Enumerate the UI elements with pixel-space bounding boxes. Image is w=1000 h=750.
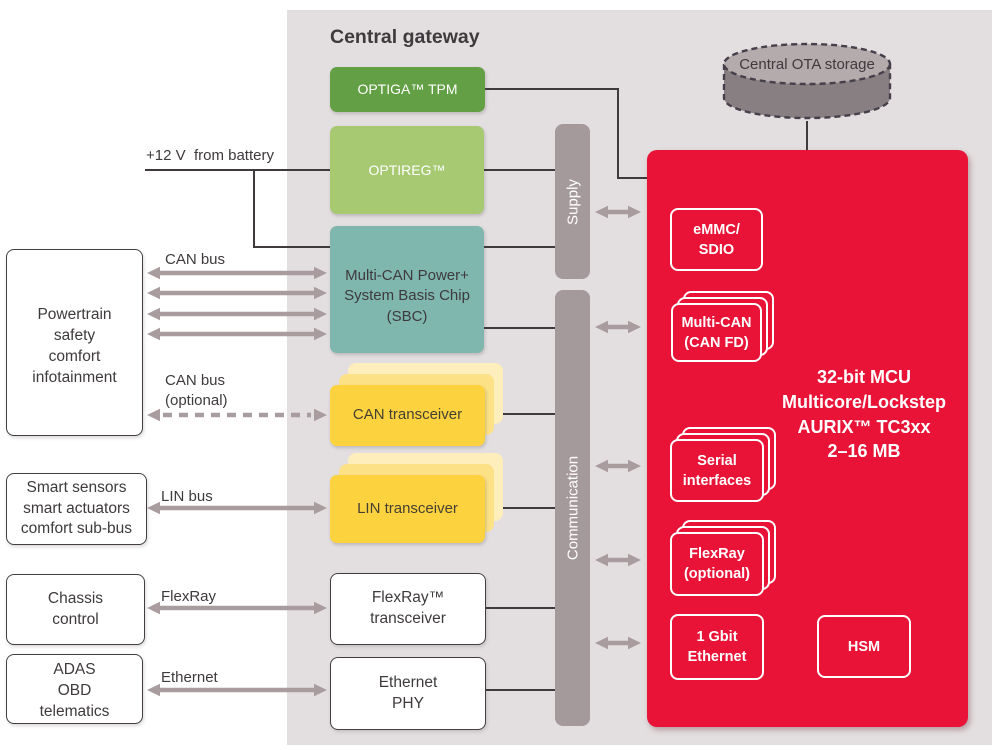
svg-text:Central OTA storage: Central OTA storage — [739, 56, 875, 73]
